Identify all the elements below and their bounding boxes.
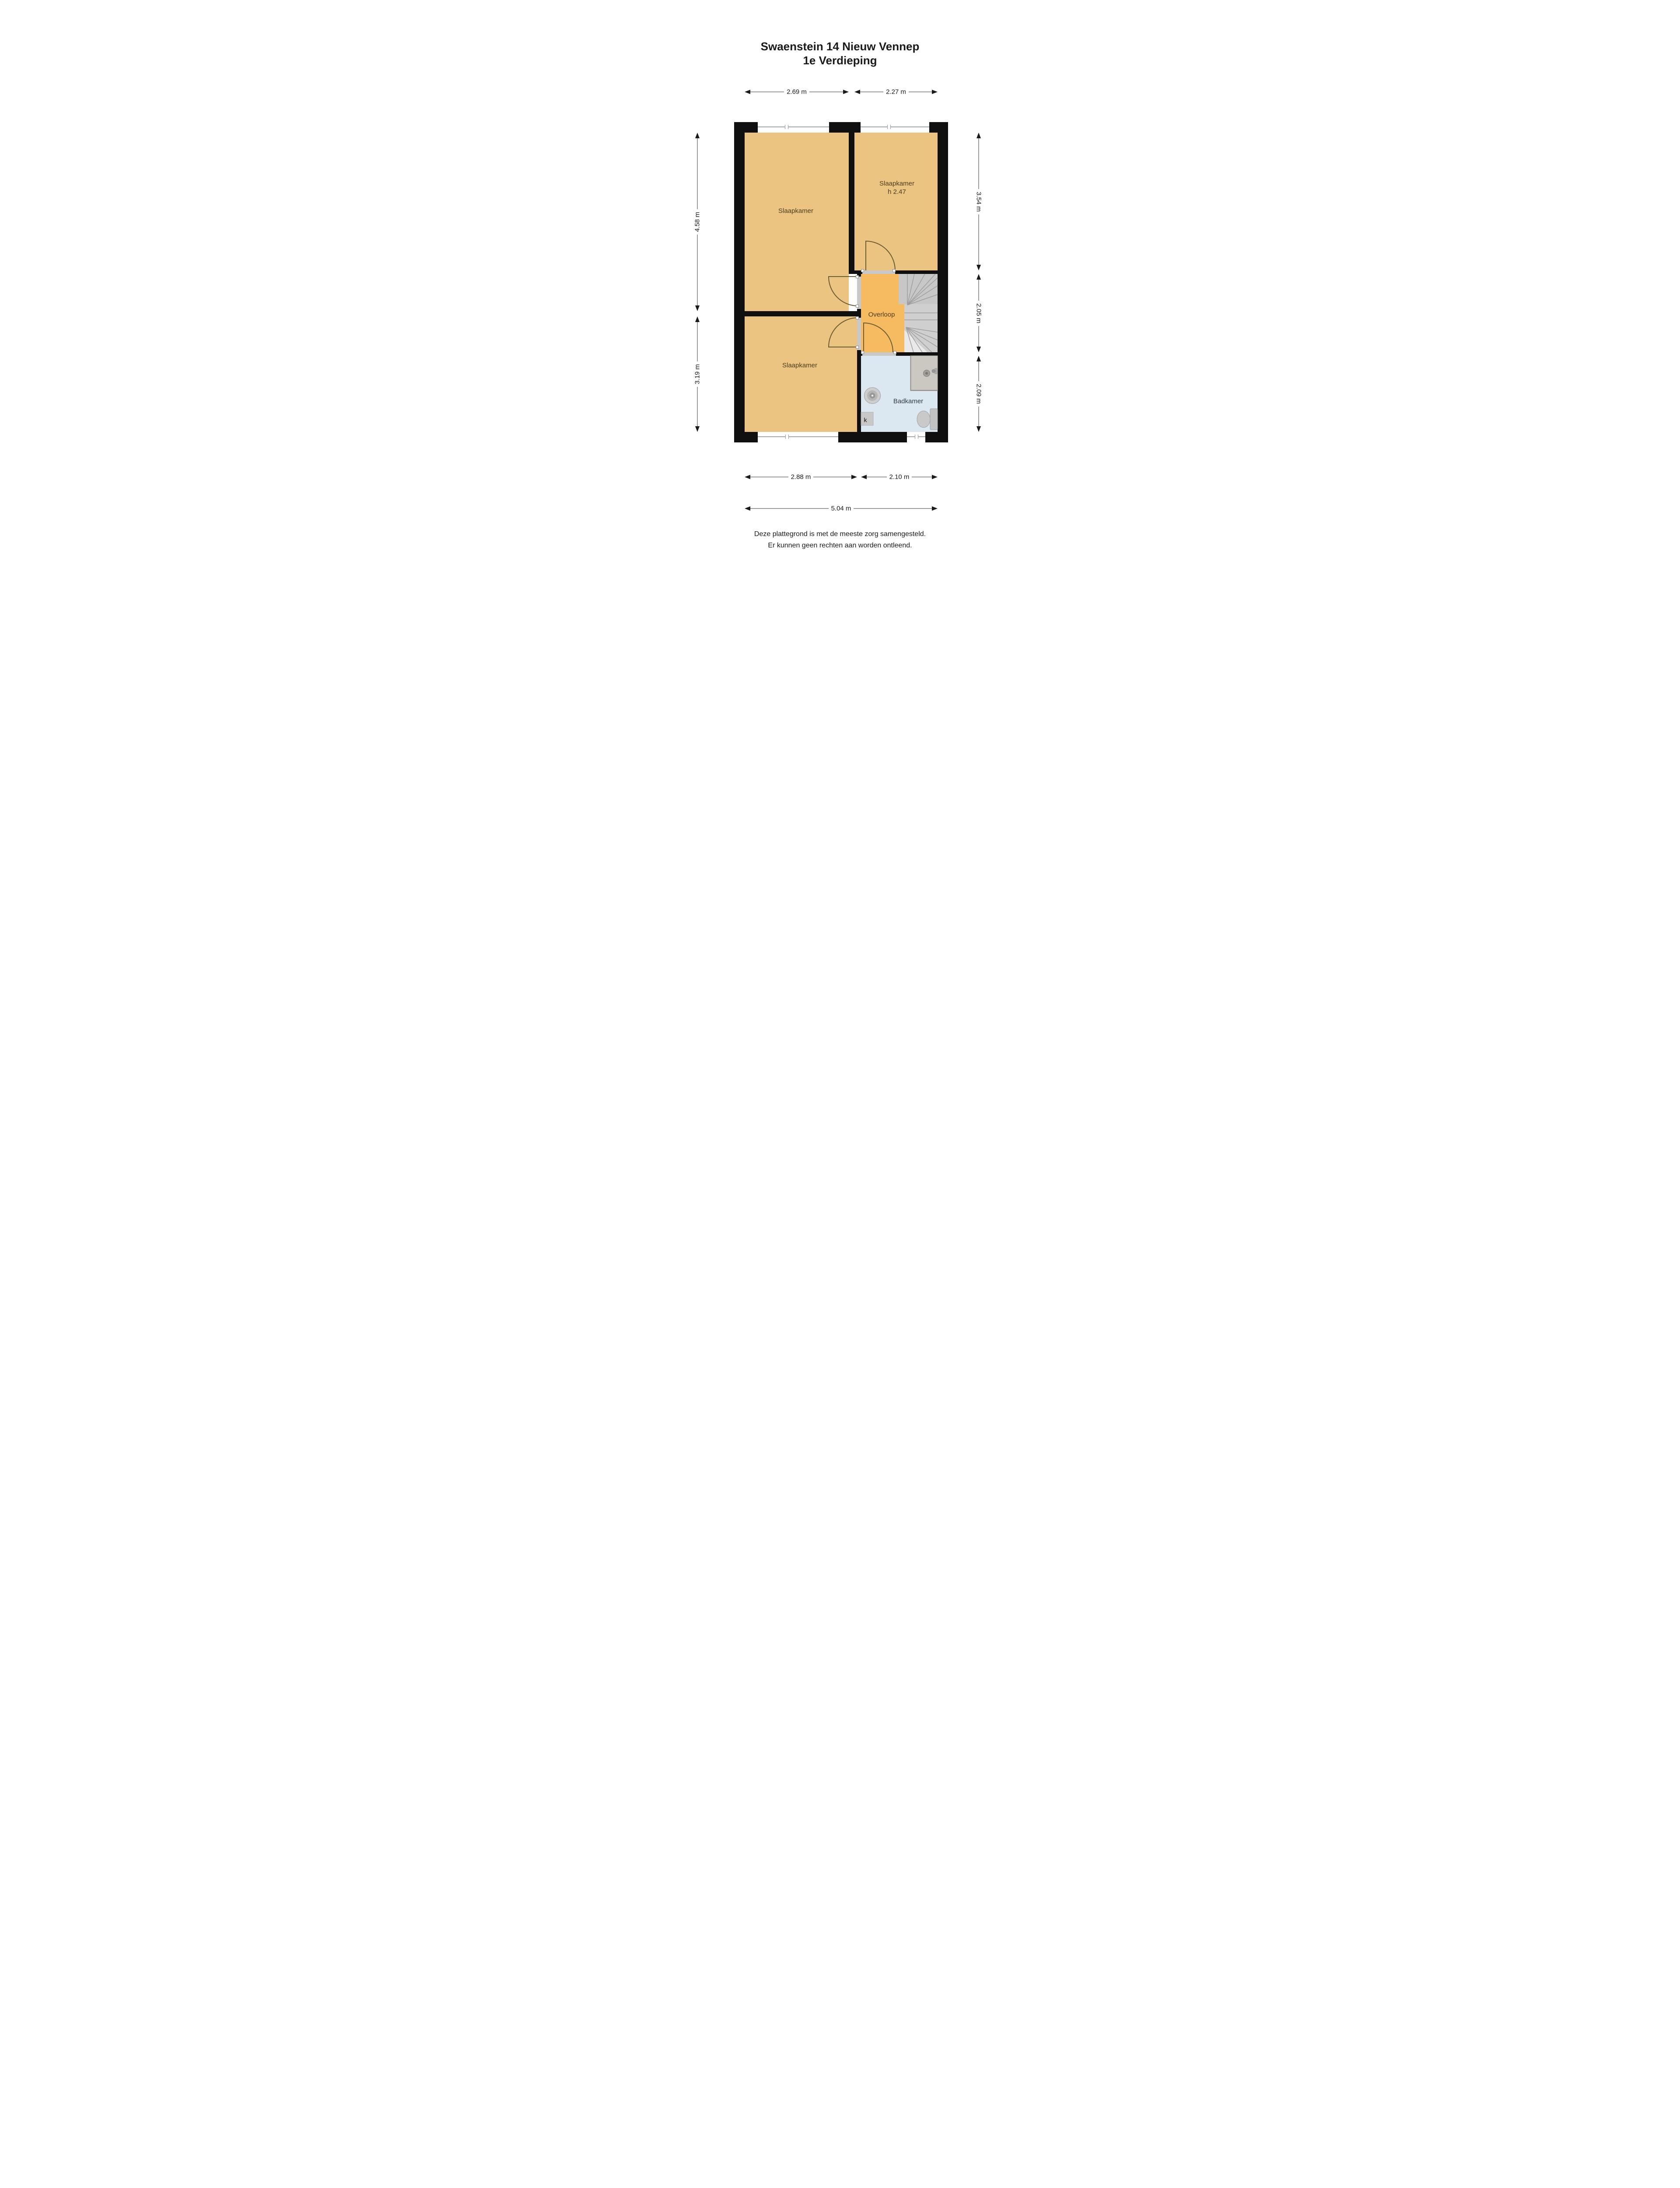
shower-drain-center	[925, 372, 928, 375]
label-closet: k	[864, 416, 867, 424]
label-bedroom-top-right-name: Slaapkamer	[879, 179, 914, 188]
arrow-right-icon	[932, 90, 938, 94]
arrow-down-icon	[695, 305, 700, 311]
dimension-label: 2.10 m	[887, 473, 912, 481]
label-bedroom-top-right: Slaapkamer h 2.47	[879, 179, 914, 196]
arrow-left-icon	[745, 506, 750, 511]
door-swings	[829, 241, 895, 352]
dimension-label: 2.05 m	[975, 301, 983, 326]
arrow-up-icon	[976, 356, 981, 361]
dimension-label: 5.04 m	[829, 505, 854, 513]
arrow-right-icon	[851, 475, 857, 479]
washbasin-drain	[871, 395, 874, 397]
arrow-right-icon	[932, 475, 938, 479]
arrow-down-icon	[976, 347, 981, 352]
dimension-label: 2.88 m	[788, 473, 814, 481]
closet-box	[861, 412, 873, 425]
disclaimer-line1: Deze plattegrond is met de meeste zorg s…	[630, 529, 1050, 540]
toilet-bowl	[917, 411, 930, 428]
label-bedroom-bottom-left: Slaapkamer	[782, 361, 817, 370]
arrow-down-icon	[695, 426, 700, 432]
dimension-label: 4.58 m	[693, 209, 702, 235]
floorplan-page: Swaenstein 14 Nieuw Vennep 1e Verdieping…	[630, 0, 1050, 594]
arrow-up-icon	[976, 133, 981, 138]
washbasin	[864, 388, 881, 404]
arrow-down-icon	[976, 265, 981, 270]
dimension-label: 2.69 m	[784, 88, 809, 96]
plan-overlay	[734, 122, 948, 442]
arrow-left-icon	[745, 475, 750, 479]
hinge-icon	[856, 346, 859, 349]
staircase	[899, 274, 938, 352]
door-arc-bedroom-bottom-left	[829, 318, 857, 347]
hinge-icon	[893, 351, 896, 354]
arrow-down-icon	[976, 426, 981, 432]
hinge-icon	[861, 351, 864, 354]
hinge-icon	[856, 275, 859, 278]
dimension-label: 3.19 m	[693, 361, 702, 387]
label-bedroom-top-left: Slaapkamer	[778, 207, 813, 215]
dimension-label: 3.54 m	[975, 189, 983, 214]
arrow-up-icon	[976, 274, 981, 280]
hinge-icon	[856, 305, 859, 308]
arrow-right-icon	[932, 506, 938, 511]
arrow-left-icon	[854, 90, 860, 94]
arrow-left-icon	[861, 475, 867, 479]
dimension-label: 2.27 m	[883, 88, 909, 96]
floorplan: Slaapkamer Slaapkamer h 2.47 Slaapkamer …	[734, 122, 948, 442]
arrow-up-icon	[695, 316, 700, 322]
door-arc-bedroom-top-left	[829, 277, 857, 306]
hinge-icon	[856, 316, 859, 319]
dimension-label: 2.09 m	[975, 381, 983, 407]
shower-mixer-knob	[932, 369, 936, 373]
hinge-icon	[861, 269, 864, 272]
page-title-line2: 1e Verdieping	[630, 53, 1050, 67]
door-arc-bathroom	[864, 323, 893, 352]
hinge-icon	[892, 269, 896, 272]
toilet-tank	[930, 409, 938, 430]
arrow-left-icon	[745, 90, 750, 94]
door-arc-bedroom-top-right	[866, 241, 895, 270]
label-landing: Overloop	[868, 311, 895, 319]
page-title-line1: Swaenstein 14 Nieuw Vennep	[630, 39, 1050, 53]
label-bedroom-top-right-height: h 2.47	[879, 188, 914, 196]
arrow-up-icon	[695, 133, 700, 138]
disclaimer-line2: Er kunnen geen rechten aan worden ontlee…	[630, 540, 1050, 551]
toilet	[917, 409, 938, 430]
arrow-right-icon	[843, 90, 849, 94]
shower	[910, 356, 938, 391]
label-bathroom: Badkamer	[893, 397, 923, 406]
